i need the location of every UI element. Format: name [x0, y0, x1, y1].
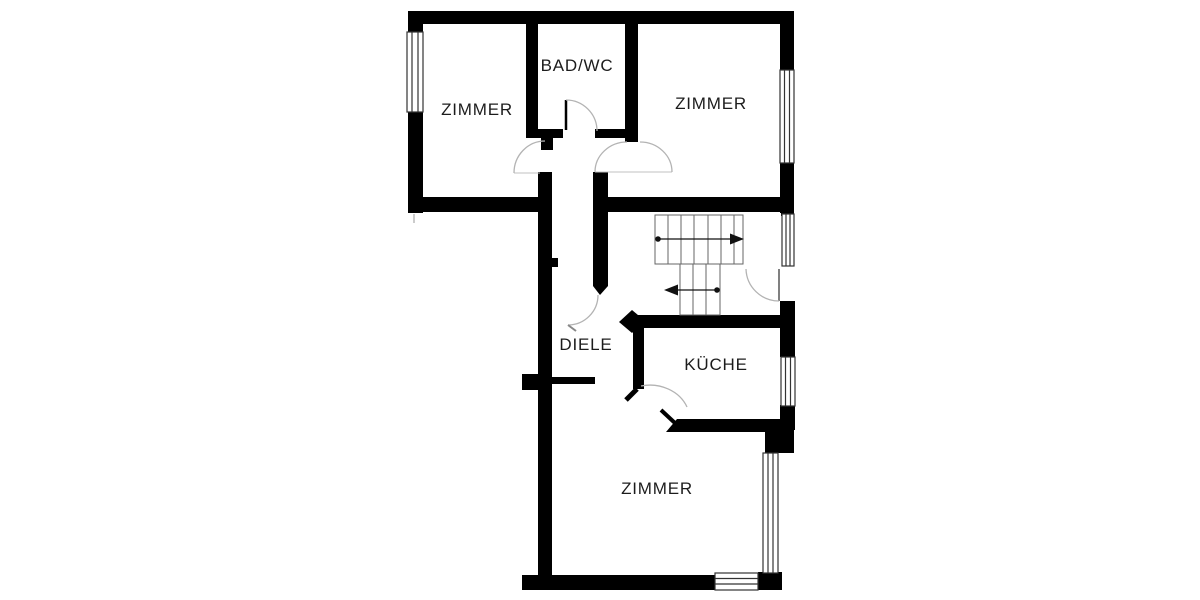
door-building-entry-icon	[746, 269, 779, 301]
label-zimmer-top-right: ZIMMER	[675, 94, 747, 113]
window-zimmer-bottom-east-icon	[763, 453, 778, 573]
window-zimmer-top-left-icon	[407, 32, 423, 112]
window-zimmer-top-right-icon	[780, 70, 794, 163]
door-badwc-icon	[566, 100, 597, 131]
wall-badwc-bottom-left	[526, 129, 563, 138]
wall-kitchen-left	[633, 325, 644, 389]
label-zimmer-top-left: ZIMMER	[441, 100, 513, 119]
stair-arrow-down-icon	[664, 285, 720, 296]
label-diele: DIELE	[559, 335, 612, 354]
wall-right-top	[780, 24, 794, 70]
wall-badwc-zimmerR	[625, 24, 638, 142]
wall-block-bottom-right	[593, 197, 794, 212]
wall-kitchen-bottom	[666, 419, 794, 432]
wall-door-jamb-tick	[541, 138, 553, 150]
label-zimmer-bottom: ZIMMER	[621, 479, 693, 498]
door-zimmer-top-left-icon	[514, 141, 545, 173]
staircase	[655, 215, 744, 315]
wall-block-bottom-left	[408, 197, 552, 212]
wall-kitchen-top	[632, 315, 794, 328]
window-zimmer-bottom-south-icon	[715, 573, 758, 590]
door-apartment-entry-icon	[568, 295, 598, 331]
floor-plan-drawing: ZIMMER BAD/WC ZIMMER DIELE KÜCHE ZIMMER	[0, 0, 1200, 600]
wall-zimmerL-badwc	[526, 24, 538, 132]
window-kitchen-icon	[781, 357, 795, 406]
wall-top-outer	[408, 11, 794, 24]
wall-kitchen-left-tick	[626, 389, 637, 400]
wall-diele-partition	[551, 377, 595, 384]
label-bad-wc: BAD/WC	[541, 56, 614, 75]
window-stairwell-icon	[782, 214, 794, 266]
wall-bottom-right-corner	[758, 572, 782, 590]
door-zimmer-top-right-icon	[595, 142, 672, 172]
wall-right-below-entry	[780, 301, 795, 357]
wall-west-stub	[522, 374, 538, 390]
label-kueche: KÜCHE	[684, 355, 748, 374]
wall-diele-right	[593, 172, 608, 286]
wall-bottom-outer	[522, 575, 715, 590]
wall-west-jamb-tick	[550, 258, 558, 267]
wall-west-spine	[538, 172, 552, 577]
door-kitchen-icon	[641, 385, 687, 424]
stair-arrow-up-icon	[655, 234, 744, 245]
wall-diele-right-taper	[593, 286, 608, 295]
floor-plan-page: ZIMMER BAD/WC ZIMMER DIELE KÜCHE ZIMMER	[0, 0, 1200, 600]
